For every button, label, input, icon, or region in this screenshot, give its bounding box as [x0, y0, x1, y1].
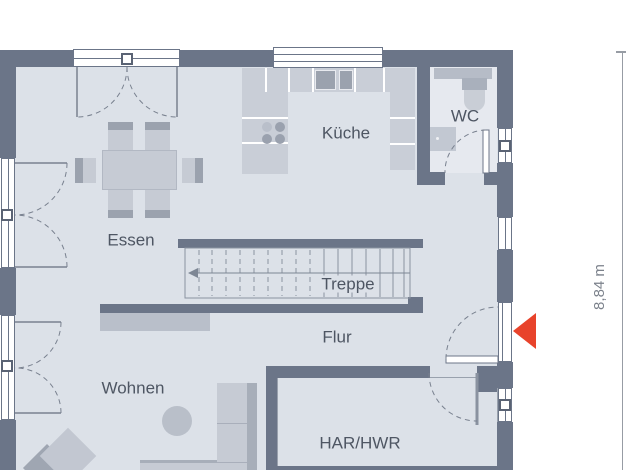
- dining-chair: [182, 158, 203, 183]
- sideboard: [100, 313, 210, 331]
- sofa-cushion-line: [217, 423, 247, 424]
- room-label-wohnen: Wohnen: [101, 380, 164, 397]
- counter-divider: [288, 68, 290, 92]
- wall-segment: [0, 50, 16, 158]
- kitchen-counter-left: [242, 92, 288, 174]
- window-frame-line: [505, 218, 506, 249]
- counter-divider: [242, 117, 288, 119]
- dining-chair: [145, 122, 170, 150]
- entry-door-opening: [498, 302, 512, 362]
- window-handle: [1, 209, 13, 221]
- dimension-label: 8,84 m: [590, 247, 610, 327]
- wall-segment: [497, 362, 513, 388]
- wall-segment: [0, 268, 16, 315]
- room-label-essen: Essen: [107, 232, 154, 249]
- stair-wall-top: [178, 239, 423, 248]
- window-right-flur: [498, 217, 512, 250]
- window-frame-line: [274, 61, 382, 62]
- window-handle: [499, 399, 511, 411]
- counter-divider: [390, 117, 415, 119]
- cooktop-burner: [262, 134, 272, 144]
- side-table: [162, 406, 192, 436]
- wall-segment: [497, 250, 513, 302]
- cooktop-burner: [275, 134, 285, 144]
- wall-segment: [497, 50, 513, 128]
- wall-segment: [497, 422, 513, 470]
- room-label-har-hwr: HAR/HWR: [319, 435, 400, 452]
- wc-wall-bottom: [484, 172, 497, 185]
- sofa-cushion-line: [217, 462, 247, 463]
- dining-chair: [145, 190, 170, 218]
- dining-chair: [75, 158, 96, 183]
- dimension-tick: [616, 51, 626, 53]
- dining-chair: [108, 190, 133, 218]
- window-handle: [499, 140, 511, 152]
- kitchen-sink-unit: [315, 70, 336, 90]
- room-label-wc: WC: [451, 108, 479, 125]
- window-handle: [121, 53, 133, 65]
- har-wall-bottom: [266, 466, 513, 470]
- dining-table: [102, 150, 177, 190]
- cooktop-burner: [262, 122, 272, 132]
- wc-wall-bottom: [417, 172, 445, 185]
- stair-wall-step: [408, 297, 423, 313]
- sofa-seat: [217, 383, 247, 470]
- toilet-tank: [462, 78, 487, 90]
- sofa-backrest: [247, 383, 257, 470]
- har-hwr-room: [277, 377, 498, 468]
- counter-divider: [312, 68, 314, 92]
- counter-divider: [383, 68, 385, 92]
- kitchen-counter-right: [390, 92, 415, 170]
- washbasin-drain: [436, 137, 439, 140]
- stair-half-wall: [100, 304, 423, 313]
- door-frame-line: [502, 303, 503, 361]
- room-label-kueche: Küche: [322, 125, 370, 142]
- counter-divider: [265, 68, 267, 92]
- window-handle: [1, 360, 13, 372]
- room-label-treppe: Treppe: [319, 276, 376, 293]
- wall-segment: [0, 420, 16, 470]
- wall-segment: [497, 163, 513, 217]
- window-fixed-kitchen: [273, 47, 383, 68]
- har-wall-left: [266, 366, 277, 470]
- washbasin: [430, 127, 456, 151]
- entrance-marker-icon: [513, 313, 536, 349]
- dimension-line: [622, 52, 623, 470]
- window-frame-line: [274, 54, 382, 55]
- floorplan-canvas: Essen Küche WC Treppe Flur Wohnen HAR/HW…: [0, 0, 626, 470]
- wc-wall-left: [417, 67, 430, 175]
- har-wall-pier: [477, 366, 497, 392]
- room-label-flur: Flur: [322, 329, 351, 346]
- kitchen-appliance: [339, 70, 353, 90]
- wall-segment: [180, 50, 273, 67]
- counter-divider: [390, 143, 415, 145]
- har-wall-top: [266, 366, 430, 378]
- cooktop-burner: [275, 122, 285, 132]
- wall-segment: [383, 50, 513, 67]
- counter-divider: [354, 68, 356, 92]
- dining-chair: [108, 122, 133, 150]
- sofa-chaise: [140, 460, 217, 470]
